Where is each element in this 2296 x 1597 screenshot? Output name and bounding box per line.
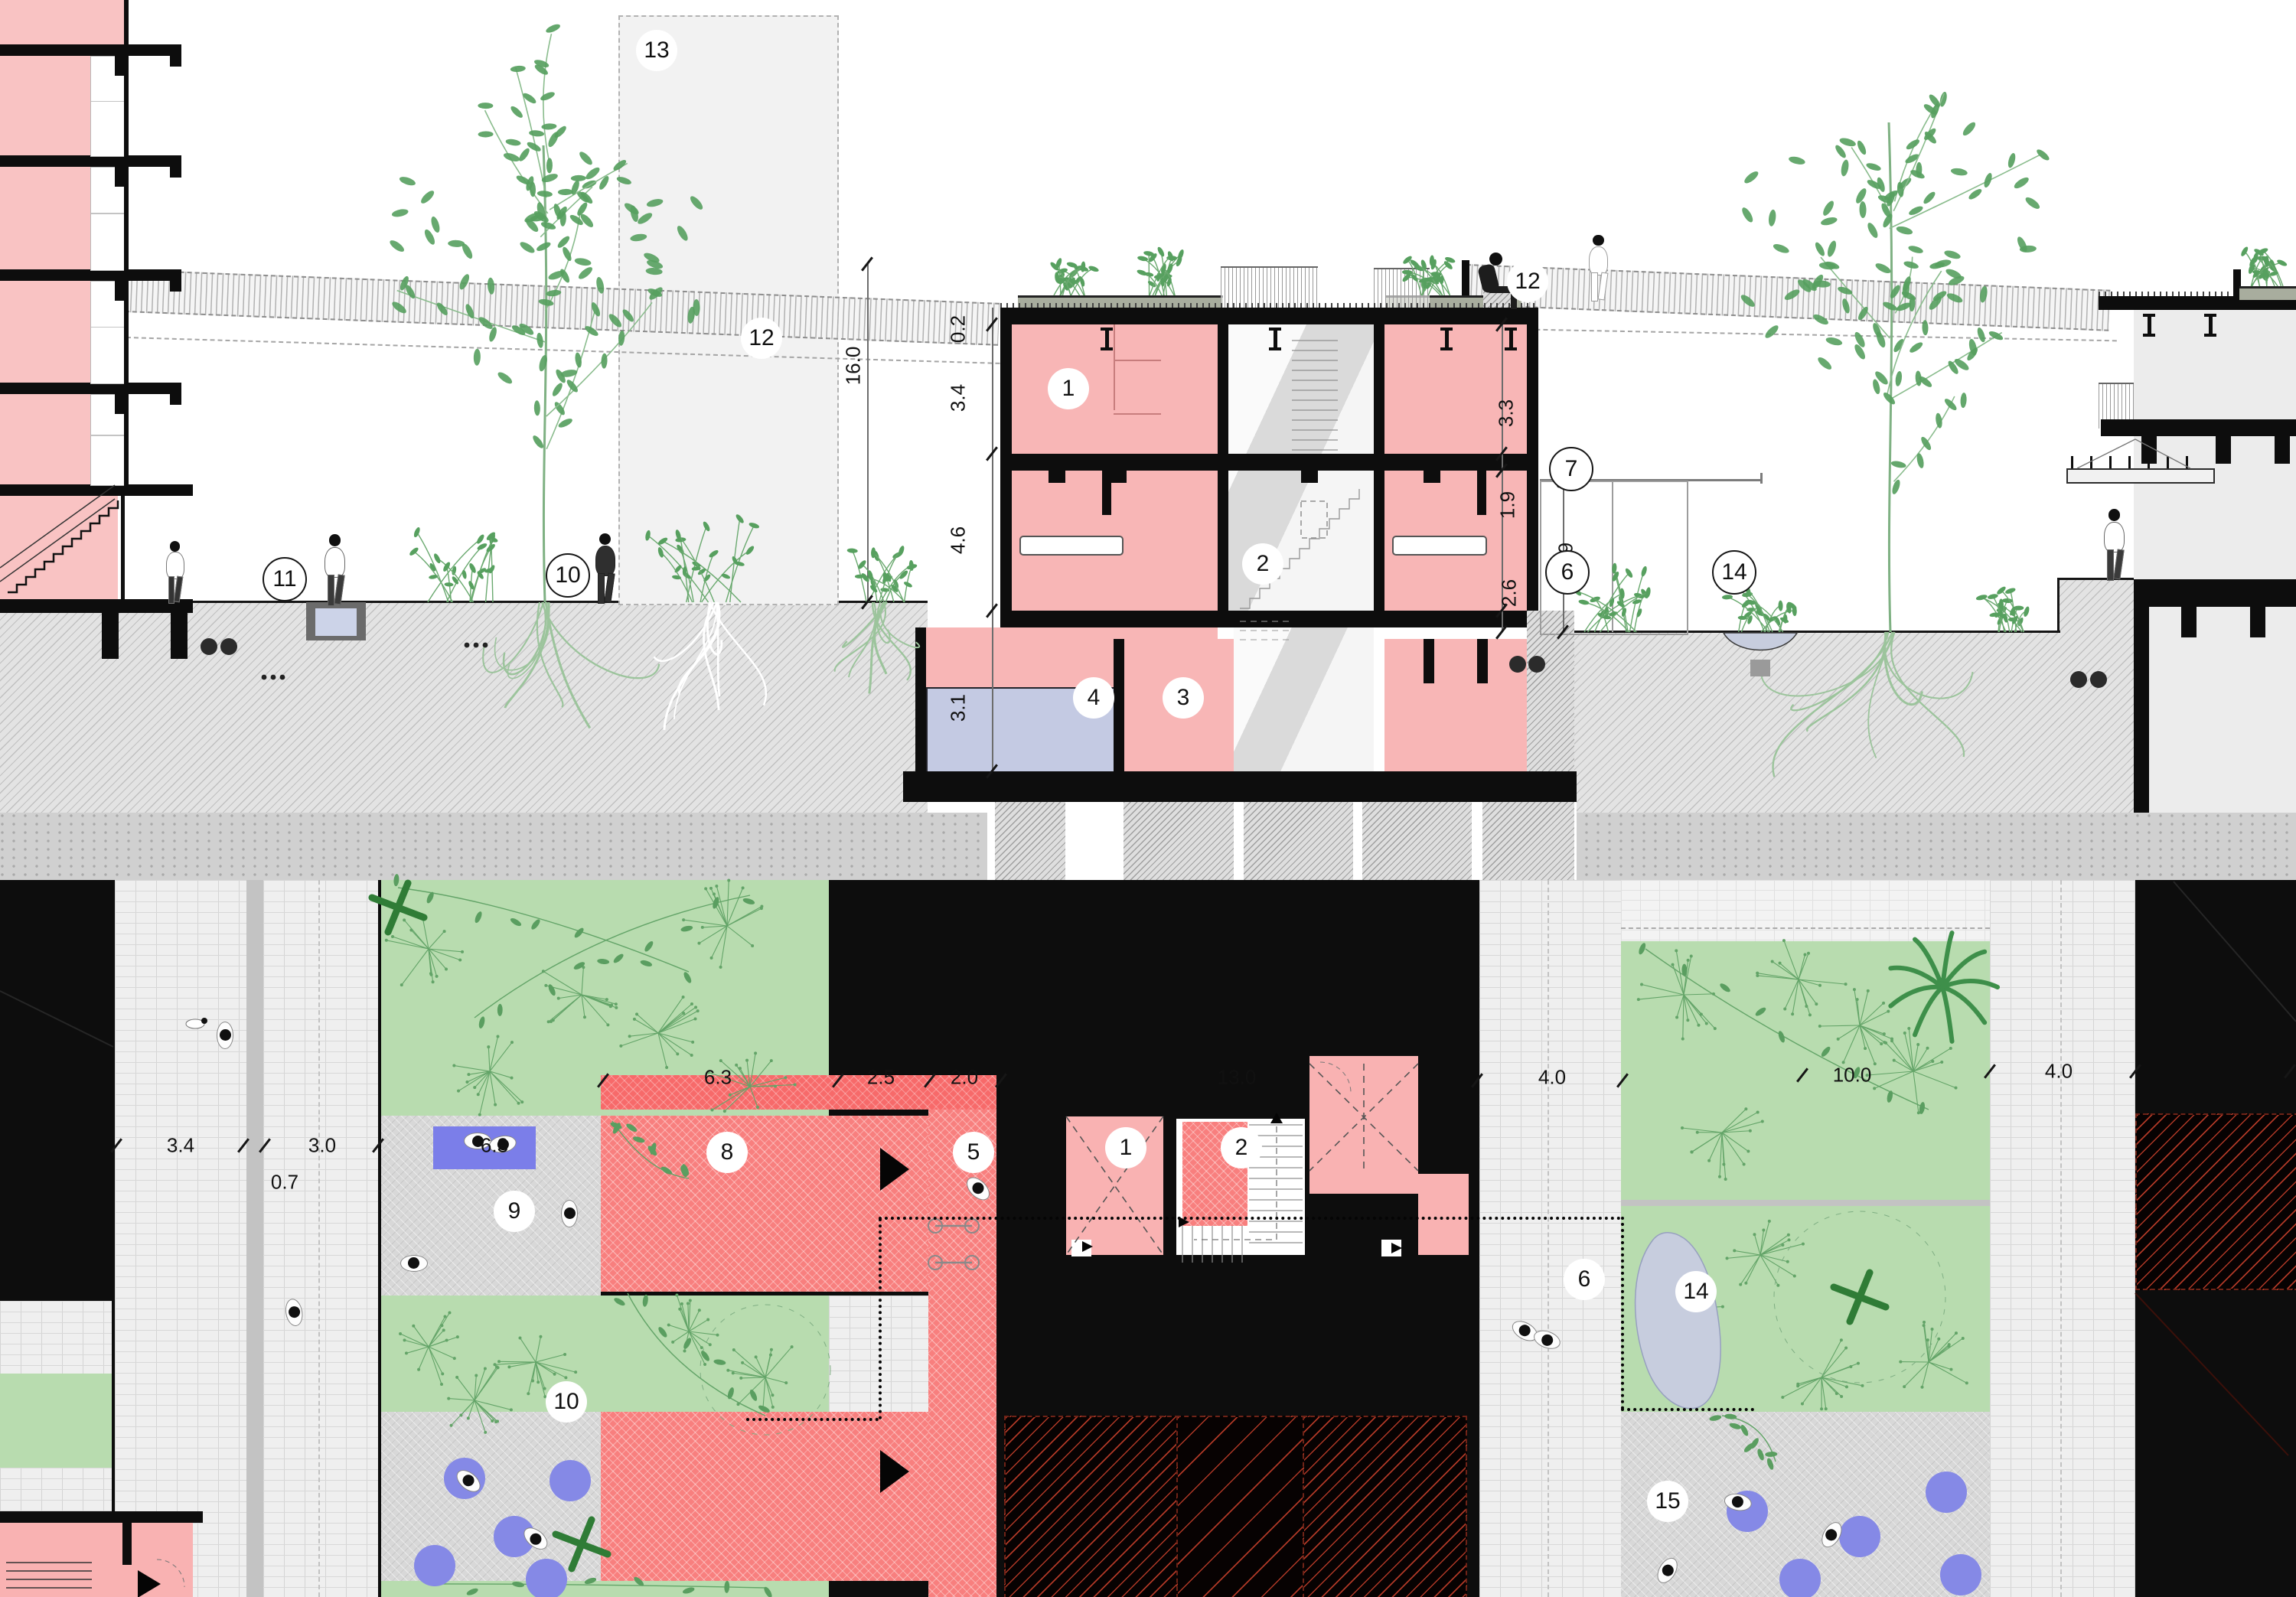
callout-8: 8 [706,1132,748,1173]
dimension-label: 0.2 [947,315,970,343]
callout-6: 6 [1545,550,1590,595]
person-icon [2101,509,2126,579]
callout-10: 10 [546,553,590,598]
callout-10: 10 [546,1381,587,1423]
callout-1: 1 [1105,1127,1146,1168]
callout-14: 14 [1712,550,1756,595]
person-icon [592,533,617,602]
dimension-label: 3.0 [308,1134,336,1158]
callout-5: 5 [953,1132,994,1173]
dimension-label: 10.0 [1833,1064,1872,1087]
callout-14: 14 [1675,1271,1717,1312]
callout-9: 9 [494,1191,535,1232]
section-cut-line [1621,1408,1754,1411]
callout-11: 11 [263,557,307,601]
dimension-label: 2.5 [867,1066,895,1090]
dimension-label: 3.4 [167,1134,194,1158]
dimension-label: 2.6 [1498,579,1521,607]
callout-3: 3 [1163,677,1204,719]
callout-12: 12 [741,318,782,359]
callout-4: 4 [1073,677,1114,719]
callout-2: 2 [1221,1127,1262,1168]
dimension-label: 4.0 [1538,1066,1566,1090]
dimension-label: 0.7 [271,1171,298,1194]
plan-vegetation [0,880,2296,1597]
callout-13: 13 [636,30,677,71]
callout-12: 12 [1507,261,1548,302]
dimension-label: 13.0 [1218,1066,1257,1090]
person-sitting-head [1489,253,1502,266]
callout-1: 1 [1048,368,1089,409]
callout-7: 7 [1549,447,1593,491]
dimension-label: 6.3 [481,1134,508,1158]
dimension-label: 6.3 [704,1066,732,1090]
person-icon [1587,235,1610,300]
section-cut-line [1621,1217,1624,1410]
dimension-label: 2.0 [951,1066,978,1090]
section-cut-line [879,1218,882,1419]
dimension-label: 4.0 [2045,1060,2073,1084]
callout-2: 2 [1242,543,1283,585]
section-vegetation [0,0,2296,880]
architectural-drawing: 1312121276141011439851210614150.216.03.4… [0,0,2296,1597]
person-top-icon [218,1022,233,1048]
dimension-label: 1.9 [1496,491,1520,519]
dimension-label: 16.0 [842,347,866,386]
dimension-label: 3.1 [947,694,970,722]
section-cut-line [746,1418,879,1421]
person-icon [321,534,347,605]
callout-6: 6 [1564,1259,1605,1300]
dimension-label: 4.6 [947,526,970,554]
dimension-label: 3.3 [1495,399,1518,427]
section-cut-line [879,1217,1621,1220]
person-top-icon [400,1255,426,1270]
person-top-icon [563,1200,578,1226]
dimension-label: 3.4 [947,384,970,412]
callout-15: 15 [1647,1481,1688,1522]
person-icon [164,541,186,602]
